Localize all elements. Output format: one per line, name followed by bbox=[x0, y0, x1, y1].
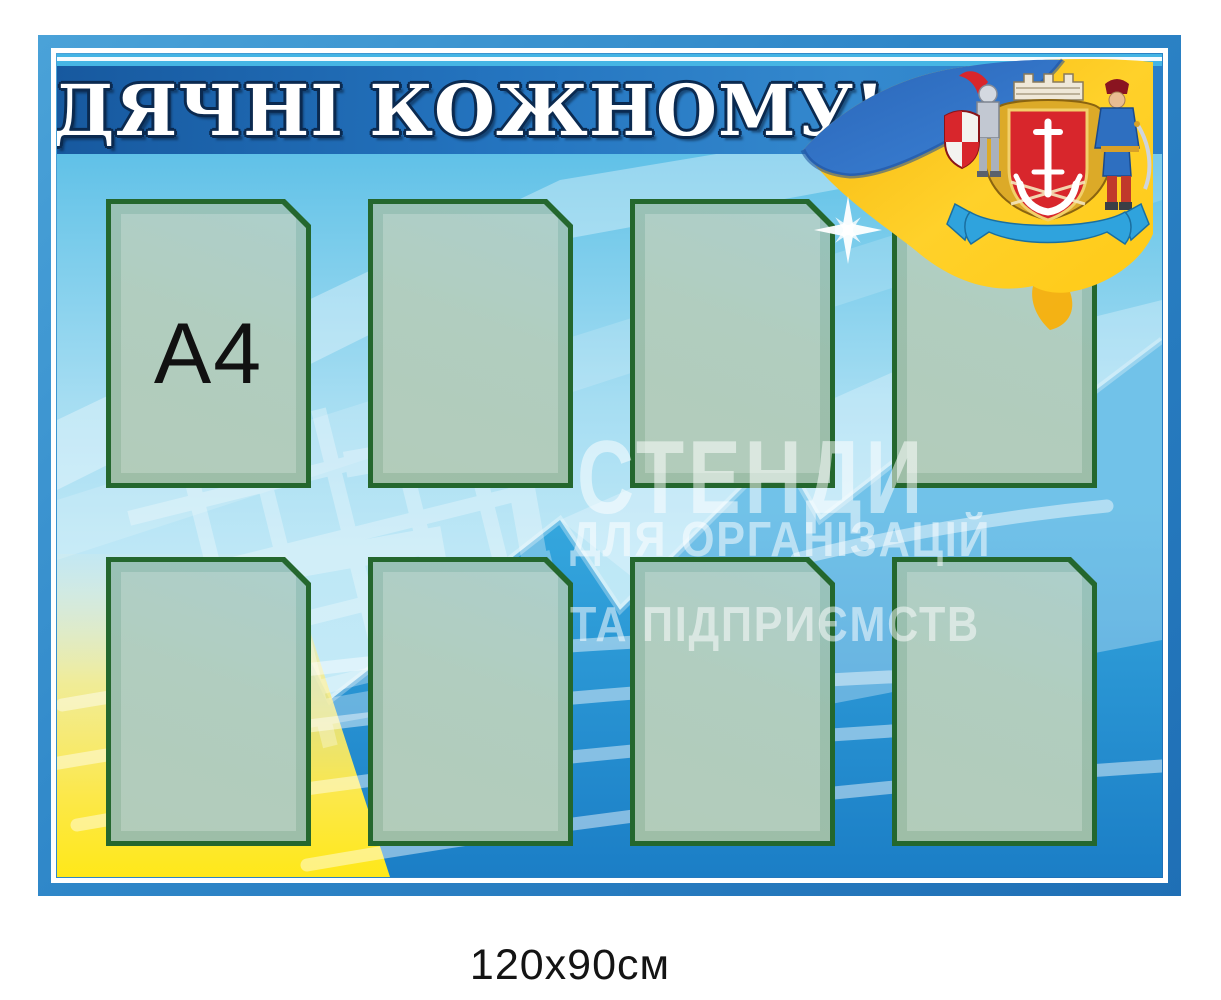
stand-title: ВДЯЧНІ КОЖНОМУ! bbox=[65, 66, 813, 154]
sparkle-icon bbox=[808, 190, 888, 270]
pocket-6 bbox=[368, 557, 573, 846]
product-image: ВДЯЧНІ КОЖНОМУ! А4 СТЕНДИ ДЛЯ ОРГАНІЗАЦІ… bbox=[0, 0, 1221, 1000]
board-content: ВДЯЧНІ КОЖНОМУ! А4 СТЕНДИ ДЛЯ ОРГАНІЗАЦІ… bbox=[57, 54, 1162, 877]
pocket-5 bbox=[106, 557, 311, 846]
watermark-line-2: ДЛЯ ОРГАНІЗАЦІЙ bbox=[570, 516, 991, 565]
pocket-1: А4 bbox=[106, 199, 311, 488]
watermark-line-3: ТА ПІДПРИЄМСТВ bbox=[570, 601, 980, 650]
pocket-format-label: А4 bbox=[154, 305, 263, 404]
pocket-2 bbox=[368, 199, 573, 488]
pocket-1-inner: А4 bbox=[111, 204, 306, 483]
size-caption: 120x90см bbox=[420, 941, 720, 990]
